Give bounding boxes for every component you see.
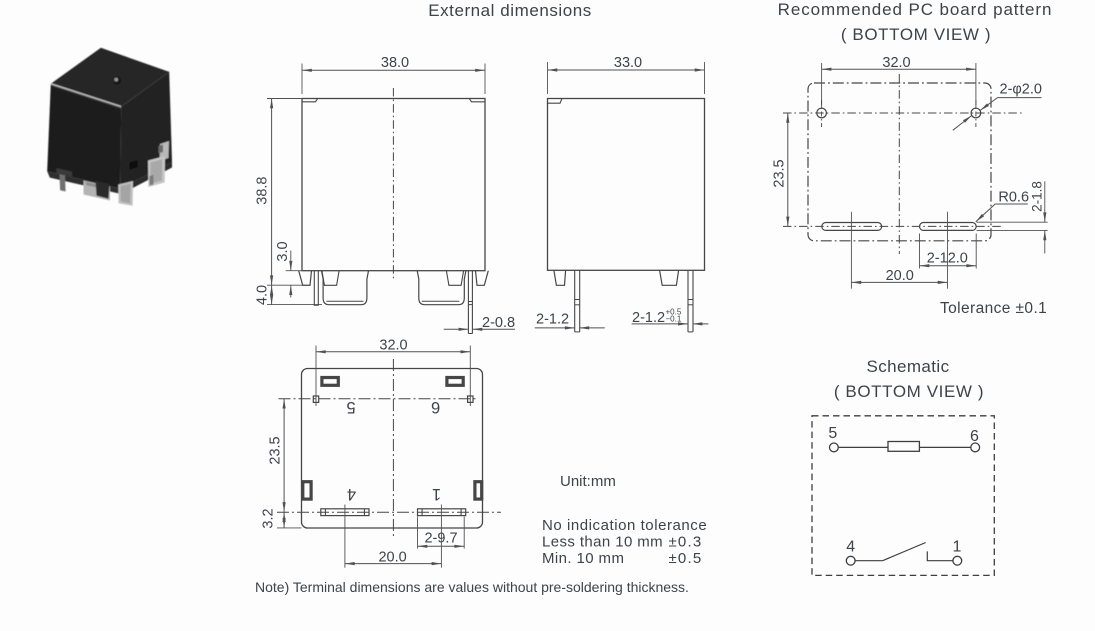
svg-text:32.0: 32.0 xyxy=(379,338,407,354)
svg-text:4: 4 xyxy=(846,539,855,556)
svg-text:2-0.8: 2-0.8 xyxy=(482,315,515,331)
svg-text:( BOTTOM VIEW ): ( BOTTOM VIEW ) xyxy=(834,382,984,401)
svg-text:20.0: 20.0 xyxy=(378,549,406,565)
svg-text:23.5: 23.5 xyxy=(772,159,788,187)
svg-text:3.2: 3.2 xyxy=(261,508,277,528)
svg-text:1: 1 xyxy=(953,539,962,556)
svg-text:20.0: 20.0 xyxy=(886,268,914,284)
svg-text:Schematic: Schematic xyxy=(867,357,950,376)
svg-text:R0.6: R0.6 xyxy=(998,189,1029,205)
svg-text:Min. 10 mm: Min. 10 mm xyxy=(542,550,624,567)
svg-text:3.0: 3.0 xyxy=(275,241,291,261)
svg-text:Note) Terminal dimensions are: Note) Terminal dimensions are values wit… xyxy=(255,579,689,595)
svg-text:2-φ2.0: 2-φ2.0 xyxy=(1000,82,1042,98)
svg-text:2-1.8: 2-1.8 xyxy=(1029,181,1044,212)
svg-text:38.8: 38.8 xyxy=(254,176,270,204)
svg-text:−0.1: −0.1 xyxy=(666,314,682,323)
svg-text:5: 5 xyxy=(346,398,355,416)
svg-text:±0.5: ±0.5 xyxy=(669,550,703,567)
svg-text:Less than 10 mm: Less than 10 mm xyxy=(542,534,663,551)
svg-text:±0.3: ±0.3 xyxy=(669,534,703,551)
svg-text:( BOTTOM VIEW ): ( BOTTOM VIEW ) xyxy=(841,25,991,44)
svg-text:Recommended PC board pattern: Recommended PC board pattern xyxy=(778,0,1053,19)
svg-text:No indication tolerance: No indication tolerance xyxy=(542,517,707,534)
svg-text:23.5: 23.5 xyxy=(268,436,284,464)
svg-text:6: 6 xyxy=(970,428,979,445)
svg-text:5: 5 xyxy=(828,425,837,442)
svg-text:33.0: 33.0 xyxy=(614,55,642,71)
svg-text:38.0: 38.0 xyxy=(381,55,409,71)
svg-text:2-12.0: 2-12.0 xyxy=(927,250,968,266)
svg-text:Tolerance ±0.1: Tolerance ±0.1 xyxy=(940,300,1047,317)
svg-text:6: 6 xyxy=(431,398,440,416)
svg-text:4.0: 4.0 xyxy=(254,285,270,305)
svg-text:4: 4 xyxy=(347,485,356,503)
svg-text:1: 1 xyxy=(432,485,441,503)
svg-text:External dimensions: External dimensions xyxy=(428,1,592,20)
svg-text:32.0: 32.0 xyxy=(882,55,910,71)
svg-text:2-1.2: 2-1.2 xyxy=(632,310,665,326)
svg-text:Unit:mm: Unit:mm xyxy=(560,473,616,490)
svg-text:2-1.2: 2-1.2 xyxy=(536,311,569,327)
